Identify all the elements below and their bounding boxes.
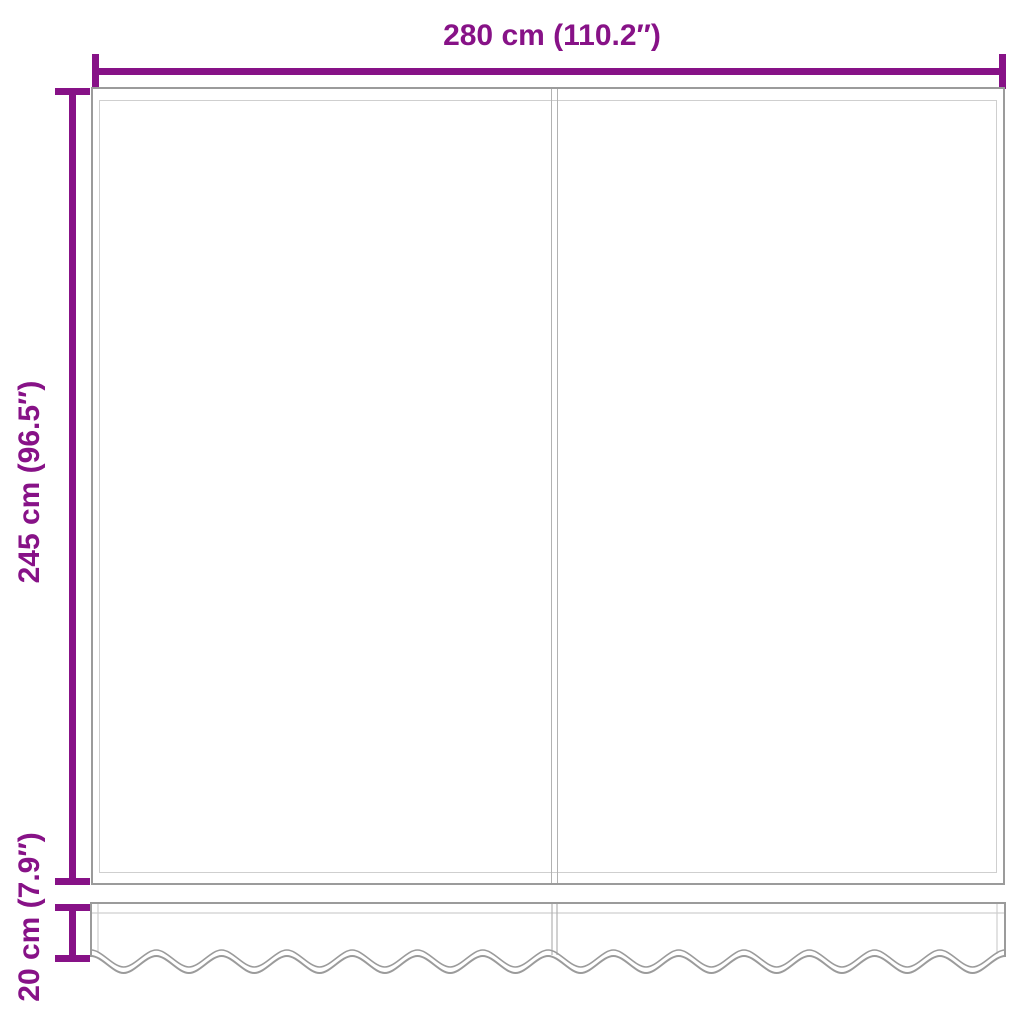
valance-dimension-bottom-tick — [55, 955, 90, 962]
width-dimension-left-tick — [92, 54, 99, 89]
dimension-diagram: 280 cm (110.2″) 245 cm (96.5″) 20 cm (7.… — [0, 0, 1024, 1024]
width-dimension-label: 280 cm (110.2″) — [402, 17, 702, 55]
awning-fabric-center-seam — [551, 89, 558, 883]
valance-wave-outer — [91, 956, 1005, 973]
height-dimension-label: 245 cm (96.5″) — [11, 322, 49, 642]
valance-dimension-line — [69, 908, 76, 959]
height-dimension-bottom-tick — [55, 878, 90, 885]
valance-dimension-label: 20 cm (7.9″) — [11, 757, 49, 1024]
width-dimension-right-tick — [999, 54, 1006, 89]
valance-dimension-top-tick — [55, 904, 90, 911]
height-dimension-line — [69, 91, 76, 882]
valance-strip — [89, 901, 1007, 985]
awning-fabric-hem-line — [99, 100, 997, 873]
height-dimension-top-tick — [55, 88, 90, 95]
width-dimension-line — [95, 68, 1003, 75]
